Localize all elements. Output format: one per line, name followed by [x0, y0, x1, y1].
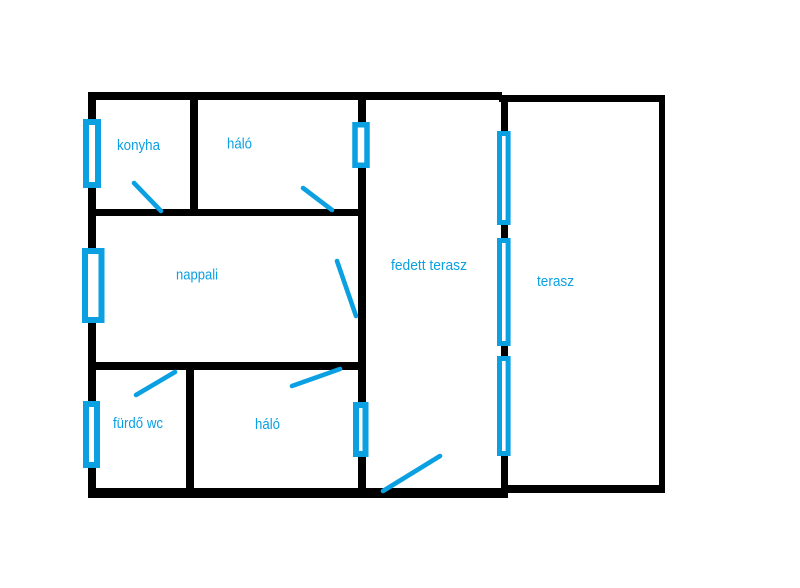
- svg-text:nappali: nappali: [176, 267, 218, 284]
- svg-text:terasz: terasz: [537, 273, 574, 290]
- svg-text:fedett terasz: fedett terasz: [391, 257, 467, 274]
- svg-text:fürdő wc: fürdő wc: [113, 415, 163, 432]
- svg-text:konyha: konyha: [117, 137, 161, 154]
- svg-text:háló: háló: [227, 136, 252, 153]
- svg-text:háló: háló: [255, 416, 280, 433]
